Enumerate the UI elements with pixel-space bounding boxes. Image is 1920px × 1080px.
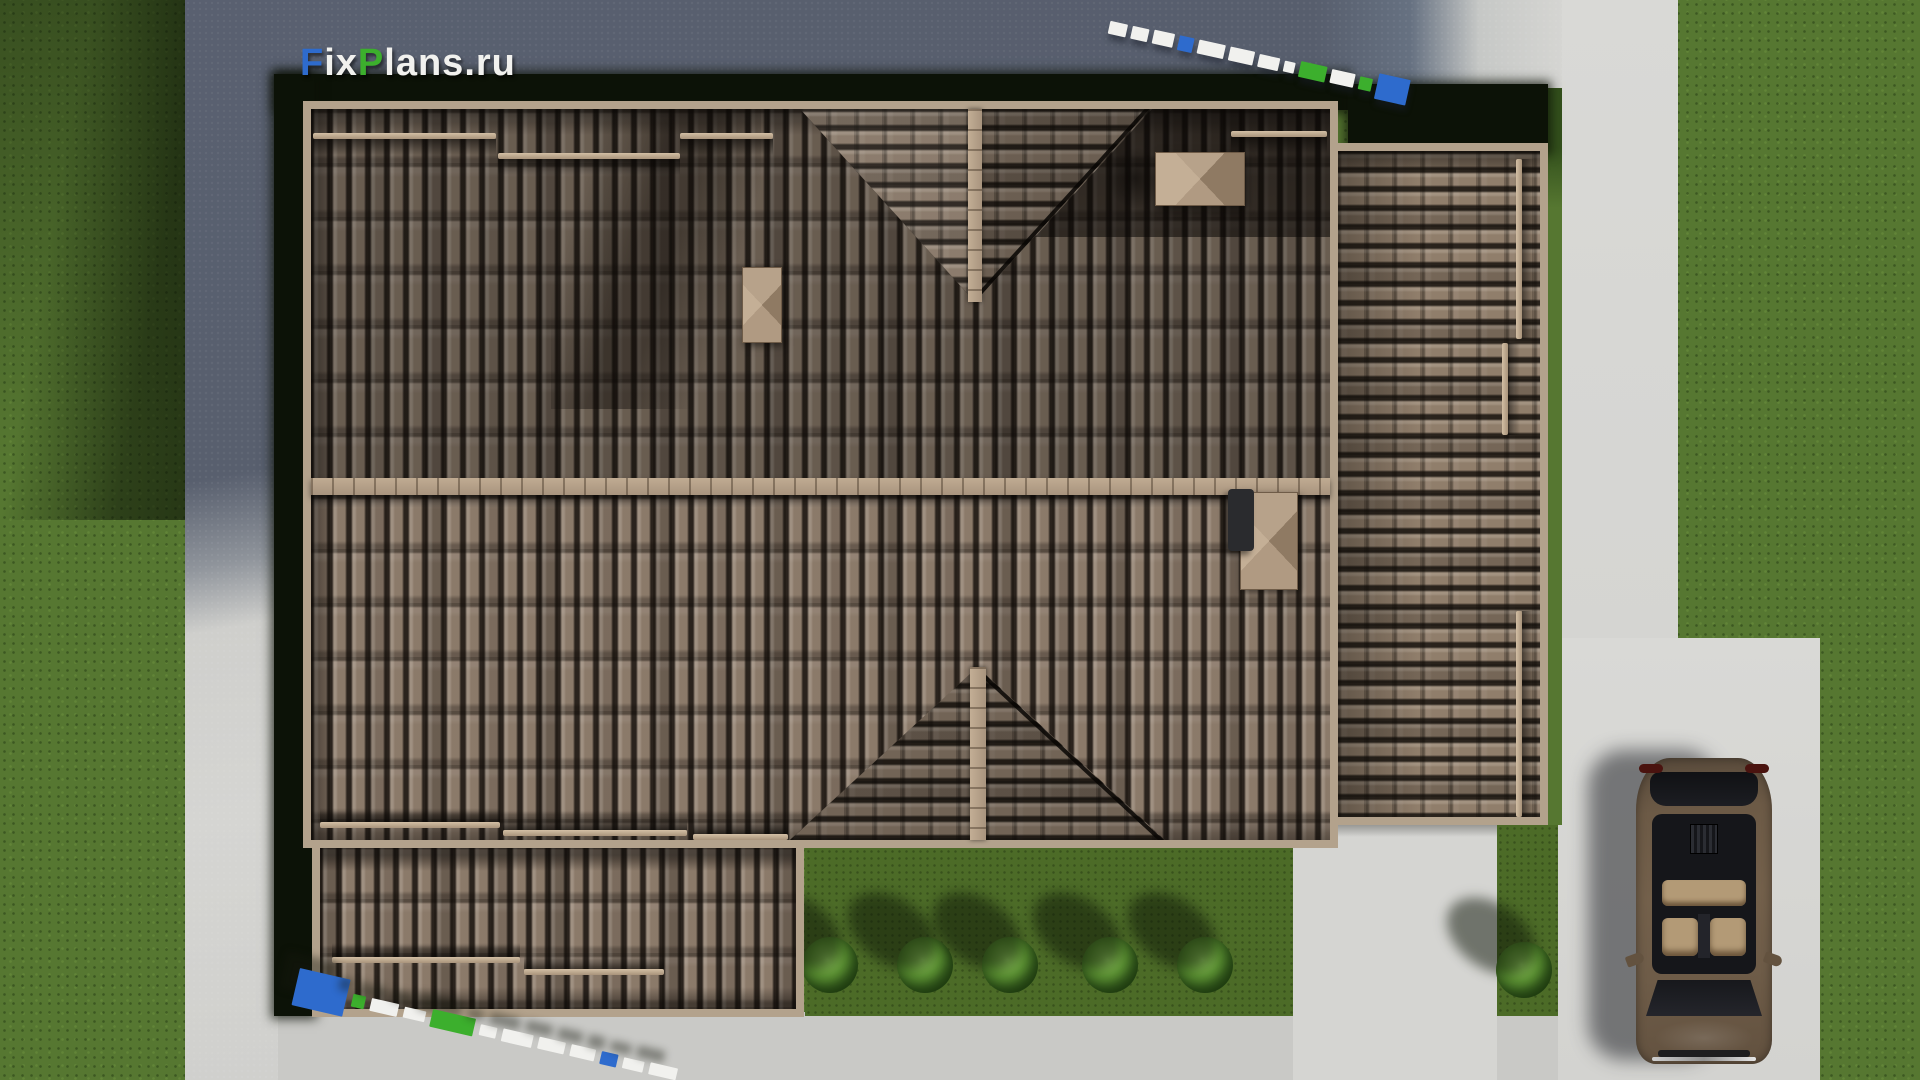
- snow-guard-rail: [320, 822, 500, 828]
- center-console: [1698, 914, 1710, 958]
- logo-block: [351, 993, 367, 1009]
- logo-block: [369, 998, 399, 1017]
- watermark-letters-lans: lans: [384, 42, 464, 84]
- side-mirror: [1763, 951, 1784, 967]
- logo-block: [1228, 46, 1255, 65]
- snow-guard-rail: [680, 133, 773, 139]
- logo-block: [1152, 30, 1176, 48]
- wing-roof-shadow: [320, 845, 796, 1009]
- watermark-letter-f: F: [300, 42, 324, 84]
- garden-bed: [805, 848, 1293, 1016]
- logo-block: [403, 1006, 427, 1022]
- windshield: [1646, 980, 1762, 1016]
- eave-shadow-left: [311, 109, 327, 840]
- shrub: [982, 937, 1038, 993]
- shrub: [802, 937, 858, 993]
- logo-block: [429, 1009, 476, 1036]
- garden-bed-right: [1497, 825, 1558, 1016]
- front-chrome-trim: [1652, 1057, 1756, 1061]
- garage-roof-shadow: [1338, 151, 1540, 817]
- logo-block: [1283, 60, 1296, 73]
- snow-guard-rail: [1516, 611, 1522, 817]
- front-seat: [1662, 918, 1698, 956]
- snow-guard-rail: [1516, 159, 1522, 339]
- logo-block: [1197, 40, 1226, 60]
- logo-block: [501, 1028, 534, 1048]
- watermark-letters-ix: ix: [324, 42, 358, 84]
- watermark-letters-ru: .ru: [464, 42, 516, 84]
- logo-block: [479, 1024, 498, 1039]
- shrub: [1082, 937, 1138, 993]
- front-grille: [1658, 1050, 1750, 1057]
- chimney: [742, 267, 782, 343]
- snow-guard-rail: [1231, 131, 1327, 137]
- concrete-path-right: [1562, 0, 1678, 648]
- logo-block: [1358, 76, 1374, 92]
- gable-ridge-cap: [968, 109, 982, 302]
- logo-block: [1298, 61, 1328, 82]
- gable-ridge-cap: [970, 667, 986, 840]
- grass-strip: [1548, 88, 1562, 825]
- watermark-text: FixPlans.ru: [300, 42, 516, 85]
- lawn-shadow: [0, 0, 195, 520]
- watermark-letter-p: P: [358, 42, 384, 84]
- main-roof: [303, 101, 1338, 848]
- roof-plane-south: [311, 495, 1330, 840]
- vent-pipe: [1228, 489, 1254, 551]
- logo-block: [1177, 35, 1195, 53]
- logo-block: [622, 1057, 645, 1072]
- car: [1580, 738, 1830, 1080]
- rear-seat: [1662, 880, 1746, 906]
- car-body: [1636, 758, 1772, 1064]
- logo-block: [1108, 20, 1128, 37]
- car-rear-window: [1650, 772, 1758, 806]
- sunroof: [1690, 824, 1718, 854]
- garage-roof: [1338, 143, 1548, 825]
- concrete-path-left: [185, 0, 278, 1080]
- logo-block: [1257, 53, 1280, 70]
- logo-block: [1329, 69, 1355, 88]
- snow-guard-rail: [503, 830, 687, 836]
- shrub: [1177, 937, 1233, 993]
- main-ridge-cap: [311, 478, 1330, 495]
- snow-guard-rail: [332, 957, 520, 963]
- ridge-shadow: [311, 495, 1330, 508]
- shrub: [1496, 942, 1552, 998]
- scene: FixPlans.ru: [0, 0, 1920, 1080]
- snow-guard-rail: [1502, 343, 1508, 435]
- snow-guard-rail: [524, 969, 664, 975]
- logo-block: [1130, 25, 1149, 41]
- chimney: [1155, 152, 1245, 206]
- taillight: [1639, 764, 1663, 773]
- logo-block: [648, 1062, 678, 1080]
- taillight: [1745, 764, 1769, 773]
- logo-block: [569, 1044, 596, 1061]
- snow-guard-rail: [693, 834, 788, 840]
- logo-block: [599, 1051, 618, 1067]
- snow-guard-rail: [313, 133, 496, 139]
- car-roof-glass: [1652, 814, 1756, 974]
- front-seat: [1710, 918, 1746, 956]
- snow-guard-rail: [498, 153, 680, 159]
- logo-block: [537, 1037, 566, 1055]
